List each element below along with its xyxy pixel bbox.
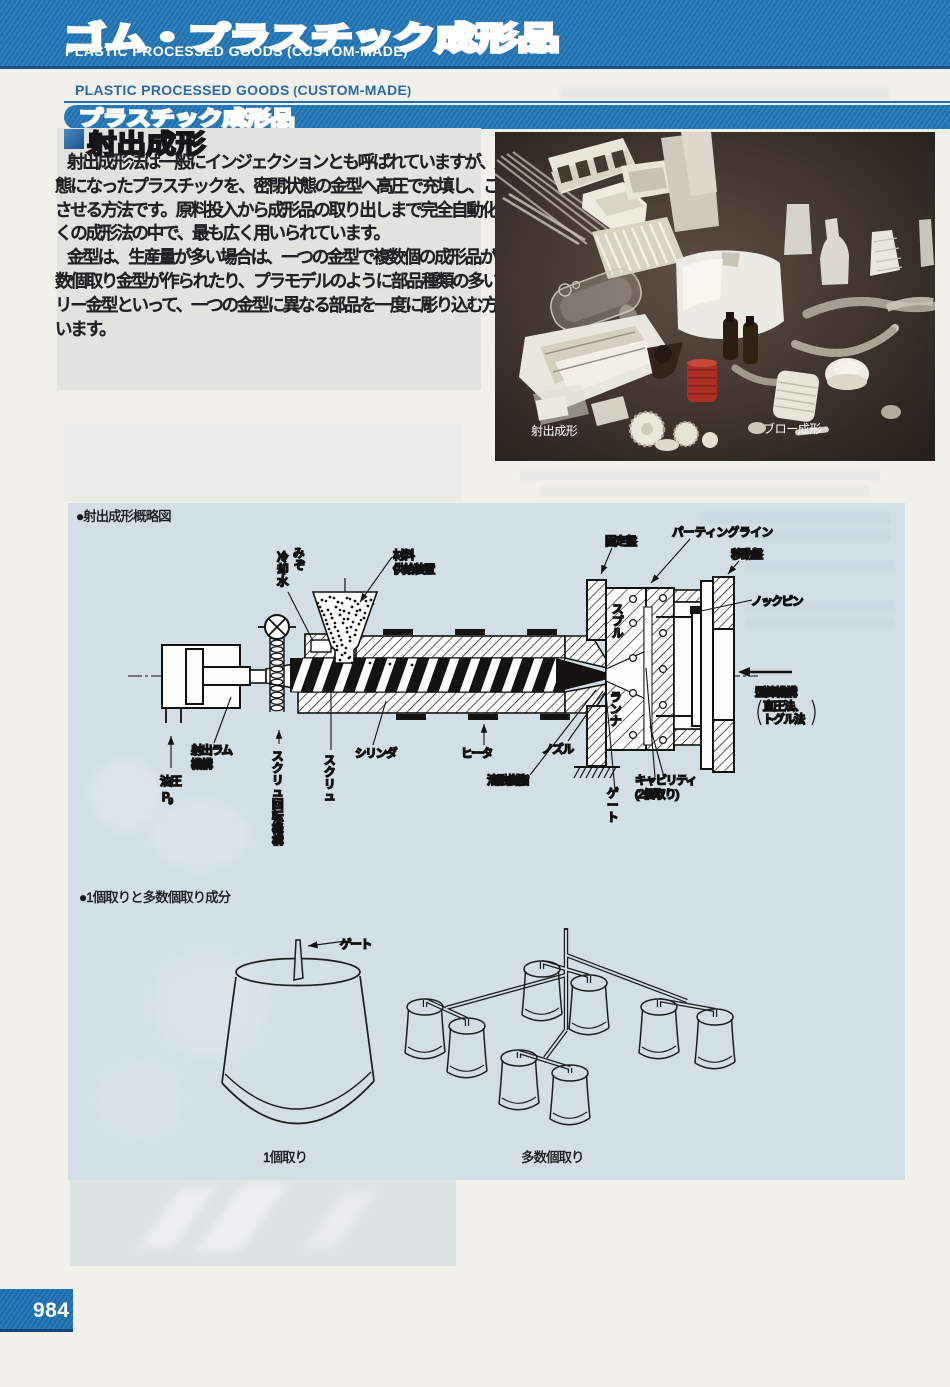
svg-text:リ: リ [272,775,282,787]
svg-text:ぞ: ぞ [294,559,305,572]
svg-text:ノックピン: ノックピン [751,595,803,608]
svg-text:ラ: ラ [610,692,621,704]
svg-text:トグル法: トグル法 [763,712,805,726]
svg-text:却: 却 [277,563,288,576]
svg-text:構: 構 [272,834,284,847]
svg-text:回: 回 [272,798,283,811]
svg-text:冷: 冷 [277,551,288,564]
svg-text:み: み [293,547,304,560]
svg-text:水: 水 [277,575,289,588]
svg-text:転: 転 [272,810,284,823]
svg-text:リ: リ [324,779,334,791]
svg-text:ュ: ュ [272,787,282,799]
svg-text:ス: ス [272,751,283,763]
svg-text:射出成形: 射出成形 [531,423,578,438]
svg-text:ゲ: ゲ [607,787,618,800]
svg-text:型締機構: 型締機構 [755,685,798,699]
svg-text:ク: ク [272,762,283,775]
svg-text:移動盤: 移動盤 [731,547,764,561]
svg-text:ブロー成形: ブロー成形 [763,421,821,436]
svg-text:ク: ク [324,766,335,779]
svg-text:直圧法、: 直圧法、 [763,699,804,713]
svg-text:キャビリティ: キャビリティ [635,774,696,787]
svg-text:ン: ン [610,704,621,716]
svg-text:油圧: 油圧 [160,774,181,788]
svg-text:ゲート: ゲート [340,938,371,951]
svg-text:プ: プ [612,615,624,628]
svg-text:供給装置: 供給装置 [393,562,435,576]
svg-text:(2個取り): (2個取り) [635,788,679,801]
svg-text:P9: P9 [162,792,173,806]
svg-text:ナ: ナ [610,715,621,728]
svg-text:固定盤: 固定盤 [605,534,638,548]
svg-text:ュ: ュ [324,791,334,803]
svg-text:ヒータ: ヒータ [461,747,493,760]
svg-text:機: 機 [272,821,284,835]
svg-text:シリンダ: シリンダ [355,746,398,760]
svg-text:ノズル: ノズル [542,742,574,756]
svg-text:溶融樹脂: 溶融樹脂 [487,773,529,787]
svg-text:ス: ス [324,755,335,767]
svg-text:射出ラム: 射出ラム [191,743,233,757]
svg-text:ル: ル [612,628,623,640]
svg-text:ス: ス [612,604,623,616]
svg-text:ト: ト [607,812,617,824]
svg-text:機構: 機構 [191,757,213,771]
svg-text:パーティングライン: パーティングライン [672,525,773,539]
svg-text:ー: ー [607,800,618,812]
svg-text:材料: 材料 [393,548,415,562]
